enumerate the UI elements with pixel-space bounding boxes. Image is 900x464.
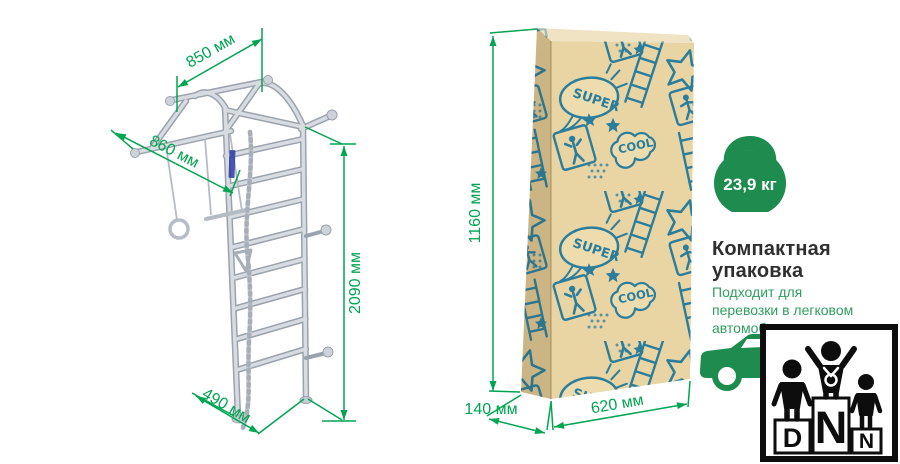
dimension-860: 860 мм [111,130,240,196]
wall-bars-drawing [131,76,338,429]
dim-490-label: 490 мм [199,385,253,427]
brand-logo: D N N [760,324,898,462]
product-infographic: SUPER COOL [0,0,900,464]
packaging-description-line2: перевозки в легковом [712,301,853,319]
dim-140-label: 140 мм [464,401,517,418]
package-box [521,28,694,399]
dim-2090-label: 2090 мм [347,252,364,314]
dim-620-label: 620 мм [590,392,645,418]
car-wheel [715,364,739,388]
dim-850-label: 850 мм [183,31,238,72]
logo-letter-right: N [859,430,874,453]
dim-1160-label: 1160 мм [467,183,484,244]
wall-anchors [306,225,333,358]
logo-letter-left: D [783,423,803,453]
logo-letter-center: N [815,402,848,453]
packaging-title-line2: упаковка [712,260,831,282]
weight-value: 23,9 кг [723,175,776,194]
packaging-title: Компактная упаковка [712,238,831,282]
packaging-title-line1: Компактная [712,238,831,260]
brand-label [229,150,236,178]
dimension-2090: 2090 мм [305,127,364,421]
weight-badge: 23,9 кг [706,126,794,216]
dimension-140: 140 мм [464,395,551,434]
packaging-description-line1: Подходит для [712,283,853,301]
